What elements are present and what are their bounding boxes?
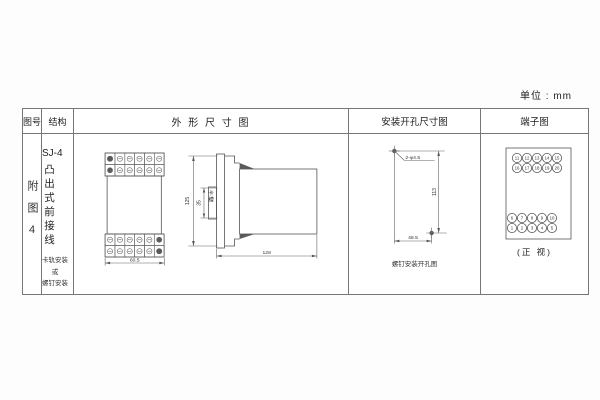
slot-label: 卡槽	[207, 190, 213, 203]
outline-drawing-cell: 60.5 125 35	[74, 134, 349, 294]
outline-drawing: 60.5 125 35	[74, 134, 348, 294]
terminal-diagram-cell: 11 12 13 14 15 16 17 18 19 20 6 7 8	[481, 134, 588, 294]
terminal-number: 4	[541, 226, 544, 231]
figure-no-cell: 附图4	[23, 134, 42, 294]
structure-type-label: 凸出式前接线	[42, 164, 57, 248]
mount-note-line: 或	[42, 267, 68, 279]
dim-front-width: 60.5	[130, 258, 140, 264]
terminal-number: 5	[551, 226, 554, 231]
terminal-number: 1	[511, 226, 514, 231]
mount-note: 卡轨安装 或 螺钉安装	[42, 255, 68, 290]
header-outline-label: 外 形 尺 寸 图	[171, 114, 250, 129]
terminal-number: 20	[555, 166, 560, 171]
terminal-number: 9	[541, 216, 544, 221]
dim-vertical: 113	[432, 188, 438, 196]
spec-table: 图号 结构 外 形 尺 寸 图 安装开孔尺寸图 端子图 附图4 SJ-4 凸出式…	[22, 108, 589, 295]
holes-label: 2-φ4.5	[405, 155, 420, 161]
terminal-number: 19	[545, 166, 550, 171]
screw-mark	[107, 156, 113, 162]
terminal-number: 8	[531, 216, 534, 221]
terminal-row-1-5: 1 2 3 4 5	[507, 223, 556, 232]
dim-height: 125	[185, 197, 191, 206]
header-structure-label: 结构	[48, 115, 66, 128]
structure-cell: SJ-4 凸出式前接线 卡轨安装 或 螺钉安装	[42, 134, 74, 294]
header-figure-no-label: 图号	[23, 115, 41, 128]
header-terminal: 端子图	[481, 109, 588, 134]
mounting-caption: 螺钉安装开孔图	[349, 258, 480, 268]
unit-label: 单位 : mm	[520, 87, 572, 102]
terminal-number: 2	[521, 226, 524, 231]
header-mounting: 安装开孔尺寸图	[349, 109, 481, 134]
header-terminal-label: 端子图	[520, 114, 549, 128]
screw-mark	[156, 248, 162, 254]
terminal-number: 13	[535, 156, 540, 161]
header-outline: 外 形 尺 寸 图	[74, 109, 349, 134]
terminal-number: 3	[531, 226, 534, 231]
terminal-number: 12	[525, 156, 530, 161]
dim-slot: 35	[196, 200, 202, 206]
figure-no: 附图4	[24, 134, 40, 247]
model-label: SJ-4	[42, 148, 63, 159]
mount-note-line: 螺钉安装	[42, 278, 68, 290]
header-figure-no: 图号	[23, 109, 42, 134]
mount-note-line: 卡轨安装	[42, 255, 68, 267]
terminal-number: 6	[511, 216, 514, 221]
terminal-number: 17	[525, 166, 530, 171]
terminal-number: 14	[545, 156, 550, 161]
dim-horizontal: 48.5	[408, 235, 418, 241]
terminal-number: 16	[515, 166, 520, 171]
mounting-hole-drawing: 2-φ4.5 113 48.5	[349, 134, 480, 294]
header-structure: 结构	[42, 109, 74, 134]
terminal-row-6-10: 6 7 8 9 10	[507, 213, 556, 222]
screw-mark	[108, 168, 113, 173]
terminal-caption: (正 视)	[481, 246, 588, 258]
screw-mark	[157, 237, 162, 242]
terminal-row-16-20: 16 17 18 19 20	[512, 163, 561, 172]
side-view: 125 35	[185, 154, 317, 259]
terminal-number: 7	[521, 216, 524, 221]
dim-depth: 128	[263, 250, 272, 256]
terminal-number: 11	[515, 156, 520, 161]
front-view: 60.5	[105, 153, 164, 266]
terminal-number: 10	[550, 216, 555, 221]
datasheet-page: { "unit_label": "单位 : mm", "table": { "h…	[0, 0, 600, 400]
terminal-number: 18	[535, 166, 540, 171]
header-mounting-label: 安装开孔尺寸图	[381, 114, 448, 128]
mounting-drawing-cell: 2-φ4.5 113 48.5 螺钉安装开孔图	[349, 134, 481, 294]
terminal-row-11-15: 11 12 13 14 15	[512, 153, 561, 162]
terminal-diagram: 11 12 13 14 15 16 17 18 19 20 6 7 8	[481, 134, 588, 294]
terminal-number: 15	[555, 156, 560, 161]
